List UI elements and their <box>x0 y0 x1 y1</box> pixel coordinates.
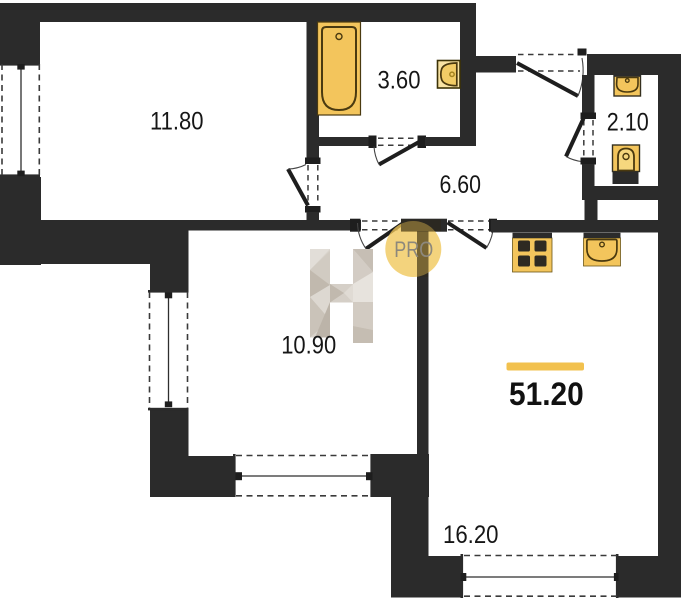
svg-text:6.60: 6.60 <box>440 171 482 199</box>
svg-text:11.80: 11.80 <box>150 107 204 135</box>
svg-text:PRO: PRO <box>394 237 433 262</box>
svg-text:10.90: 10.90 <box>281 332 336 360</box>
svg-text:3.60: 3.60 <box>378 67 421 95</box>
svg-text:16.20: 16.20 <box>443 521 499 549</box>
svg-text:51.20: 51.20 <box>509 376 584 412</box>
svg-text:2.10: 2.10 <box>607 109 649 137</box>
